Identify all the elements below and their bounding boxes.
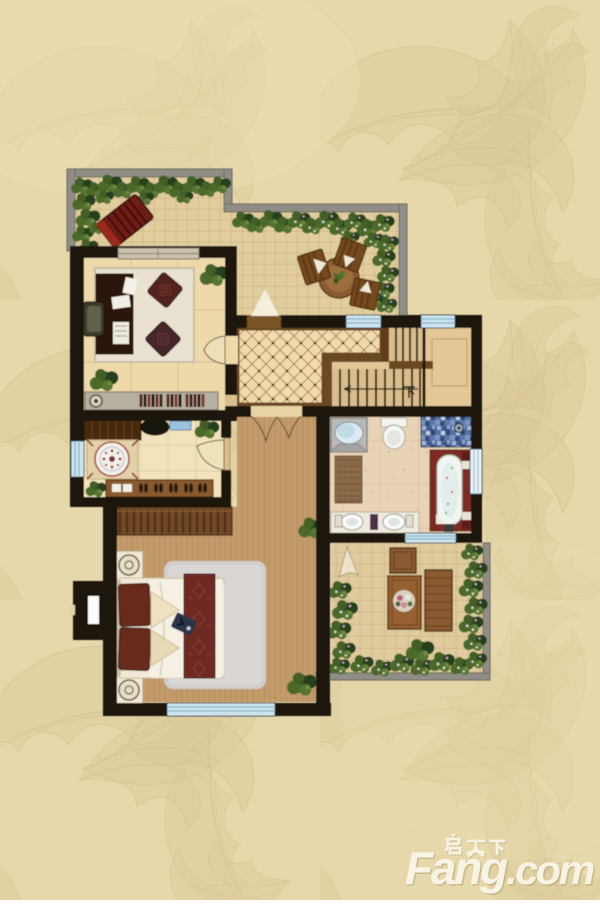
svg-text:Fang.com: Fang.com — [405, 842, 594, 894]
